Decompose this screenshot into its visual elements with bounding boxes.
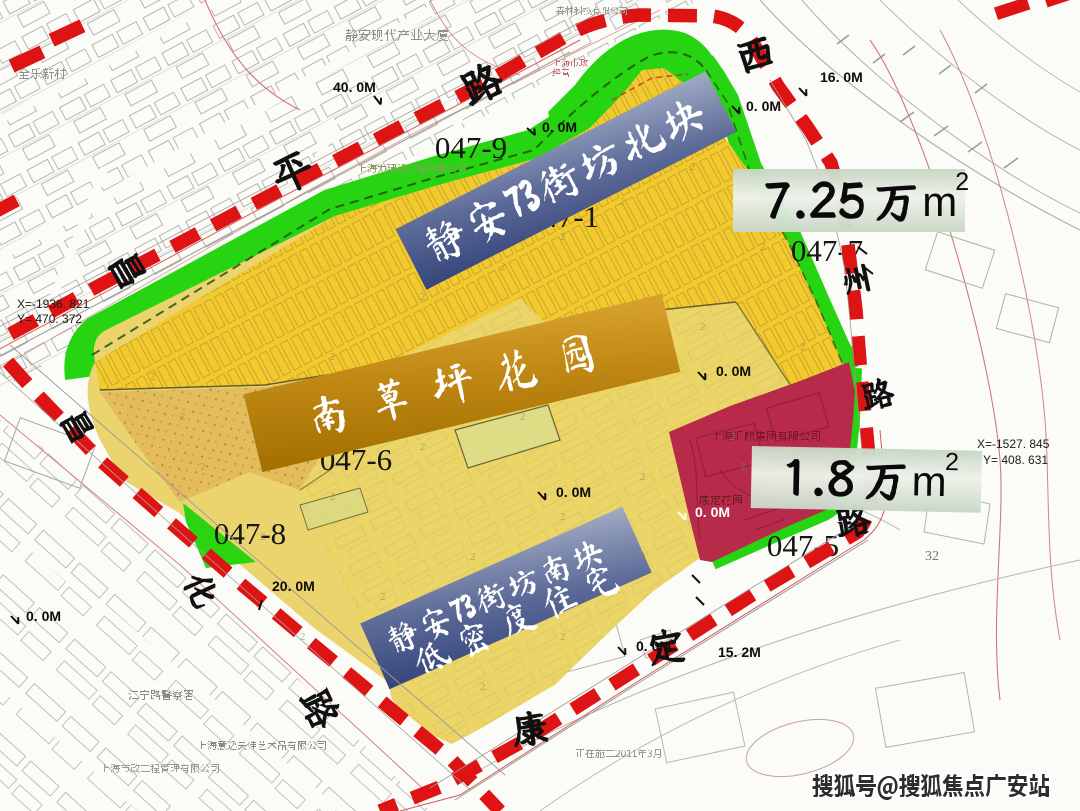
svg-text:Y= 408. 631: Y= 408. 631: [983, 453, 1048, 467]
svg-text:2: 2: [620, 196, 626, 208]
svg-text:2: 2: [260, 531, 266, 543]
svg-text:2: 2: [330, 491, 336, 503]
svg-text:0. 0M: 0. 0M: [695, 504, 730, 520]
svg-text:2: 2: [520, 411, 526, 423]
svg-text:X=-1527. 845: X=-1527. 845: [977, 437, 1050, 451]
svg-text:2: 2: [560, 231, 566, 243]
svg-text:2: 2: [740, 461, 746, 473]
svg-text:2: 2: [420, 441, 426, 453]
svg-text:2: 2: [420, 291, 426, 303]
svg-text:2: 2: [955, 168, 969, 196]
svg-text:2: 2: [180, 411, 186, 423]
svg-text:2: 2: [330, 351, 336, 363]
svg-text:2: 2: [800, 341, 806, 353]
svg-text:2: 2: [560, 631, 566, 643]
svg-text:0. 0M: 0. 0M: [716, 363, 751, 379]
svg-text:2: 2: [760, 241, 766, 253]
svg-text:2: 2: [200, 461, 206, 473]
svg-text:Y= 470. 372: Y= 470. 372: [17, 312, 82, 326]
svg-text:40. 0M: 40. 0M: [333, 79, 376, 95]
svg-text:0. 0M: 0. 0M: [746, 98, 781, 114]
svg-text:32: 32: [925, 549, 939, 564]
svg-text:2: 2: [300, 631, 306, 643]
svg-text:m: m: [922, 178, 957, 225]
svg-text:2: 2: [500, 261, 506, 273]
svg-text:2: 2: [945, 448, 959, 476]
svg-text:047-8: 047-8: [214, 516, 286, 551]
svg-text:0. 0M: 0. 0M: [542, 119, 577, 135]
svg-text:0. 0M: 0. 0M: [636, 638, 671, 654]
svg-text:m: m: [911, 457, 947, 505]
svg-text:2: 2: [730, 431, 736, 443]
svg-text:2: 2: [560, 511, 566, 523]
svg-text:2: 2: [380, 591, 386, 603]
svg-text:0. 0M: 0. 0M: [556, 484, 591, 500]
svg-text:16. 0M: 16. 0M: [820, 69, 863, 85]
svg-text:2: 2: [260, 386, 266, 398]
svg-text:2: 2: [480, 681, 486, 693]
svg-text:20. 0M: 20. 0M: [272, 578, 315, 594]
svg-text:2: 2: [690, 161, 696, 173]
svg-text:2: 2: [640, 551, 646, 563]
svg-text:15. 2M: 15. 2M: [718, 644, 761, 660]
svg-text:2: 2: [150, 371, 156, 383]
svg-text:2: 2: [470, 551, 476, 563]
svg-text:047-9: 047-9: [435, 130, 507, 165]
svg-text:X=-1936. 821: X=-1936. 821: [17, 297, 90, 311]
svg-text:0. 0M: 0. 0M: [26, 608, 61, 624]
svg-text:2: 2: [640, 471, 646, 483]
svg-text:2: 2: [700, 321, 706, 333]
svg-text:2: 2: [600, 371, 606, 383]
